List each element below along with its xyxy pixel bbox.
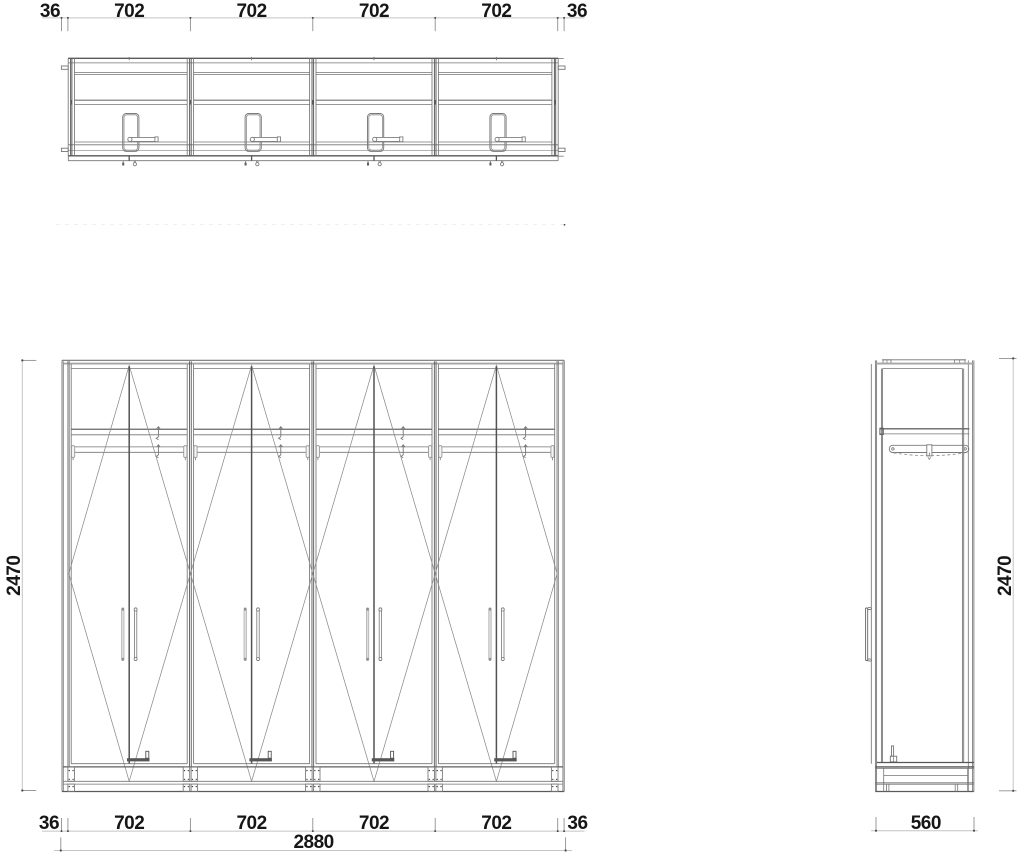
svg-text:702: 702 [481, 1, 511, 22]
svg-text:702: 702 [114, 813, 144, 834]
svg-text:702: 702 [359, 813, 389, 834]
svg-text:36: 36 [39, 813, 59, 834]
svg-text:702: 702 [481, 813, 511, 834]
svg-text:702: 702 [114, 1, 144, 22]
svg-text:560: 560 [911, 813, 941, 834]
svg-text:702: 702 [236, 813, 266, 834]
svg-text:2880: 2880 [293, 832, 333, 853]
svg-text:702: 702 [359, 1, 389, 22]
svg-text:36: 36 [40, 1, 60, 22]
svg-text:2470: 2470 [4, 556, 25, 596]
svg-text:2470: 2470 [995, 556, 1016, 596]
svg-text:702: 702 [236, 1, 266, 22]
svg-text:36: 36 [567, 1, 587, 22]
svg-text:36: 36 [567, 813, 587, 834]
